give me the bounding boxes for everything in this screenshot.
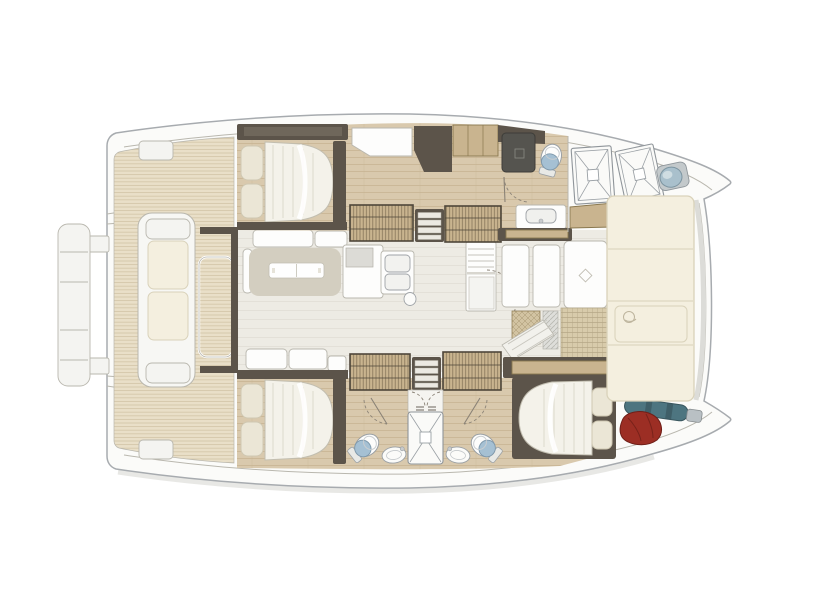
shelf-unit bbox=[453, 125, 498, 156]
wardrobe bbox=[350, 205, 413, 241]
companionway-steps bbox=[415, 209, 444, 242]
forward-door-panel bbox=[533, 245, 560, 307]
fridge-cabinet bbox=[466, 242, 496, 311]
aft-settee-cushion bbox=[289, 349, 327, 369]
bulkhead-inner bbox=[244, 127, 342, 136]
sink-basin bbox=[385, 255, 410, 272]
bench-cushion bbox=[148, 241, 188, 289]
cockpit-bench bbox=[138, 213, 195, 387]
cockpit-table bbox=[199, 257, 233, 357]
sink-basin bbox=[385, 274, 410, 290]
wardrobe bbox=[443, 352, 501, 390]
forward-door-panel bbox=[502, 245, 529, 307]
foredeck-sunpads bbox=[607, 196, 704, 401]
bulkhead bbox=[237, 370, 348, 379]
cooktop bbox=[346, 248, 373, 267]
settee-back bbox=[253, 230, 313, 247]
companionway-steps bbox=[412, 357, 441, 390]
sunpad-base bbox=[607, 196, 694, 401]
stern-locker-starboard bbox=[139, 440, 173, 459]
pillow bbox=[592, 421, 612, 449]
bed-side-trim bbox=[333, 378, 346, 464]
aft-settee-cushion bbox=[246, 349, 287, 369]
guest-forward-cabin bbox=[503, 357, 616, 459]
serving-tray-table bbox=[269, 263, 324, 278]
central-shower bbox=[408, 390, 443, 464]
shower-tray bbox=[502, 133, 535, 172]
wardrobe bbox=[445, 206, 501, 242]
floor-plan-page: Catamaran yacht deck floor plan — top-do… bbox=[0, 0, 840, 600]
saloon-aft-wall bbox=[231, 230, 238, 372]
deck-hatch bbox=[571, 146, 615, 205]
bed-side-trim bbox=[333, 141, 346, 229]
catamaran-floor-plan: Catamaran yacht deck floor plan — top-do… bbox=[0, 0, 840, 600]
forward-door-panel bbox=[564, 241, 607, 308]
galley-faucet bbox=[404, 293, 416, 306]
tan-rail bbox=[512, 361, 610, 374]
aft-cockpit bbox=[114, 137, 237, 463]
stern-locker-port bbox=[139, 141, 173, 160]
galley bbox=[343, 245, 416, 306]
tan-rail bbox=[506, 230, 568, 238]
settee-back bbox=[315, 231, 347, 247]
bench-cushion bbox=[148, 292, 188, 340]
wardrobe bbox=[350, 354, 410, 390]
bulkhead bbox=[237, 222, 347, 230]
nav-seat bbox=[328, 356, 346, 371]
